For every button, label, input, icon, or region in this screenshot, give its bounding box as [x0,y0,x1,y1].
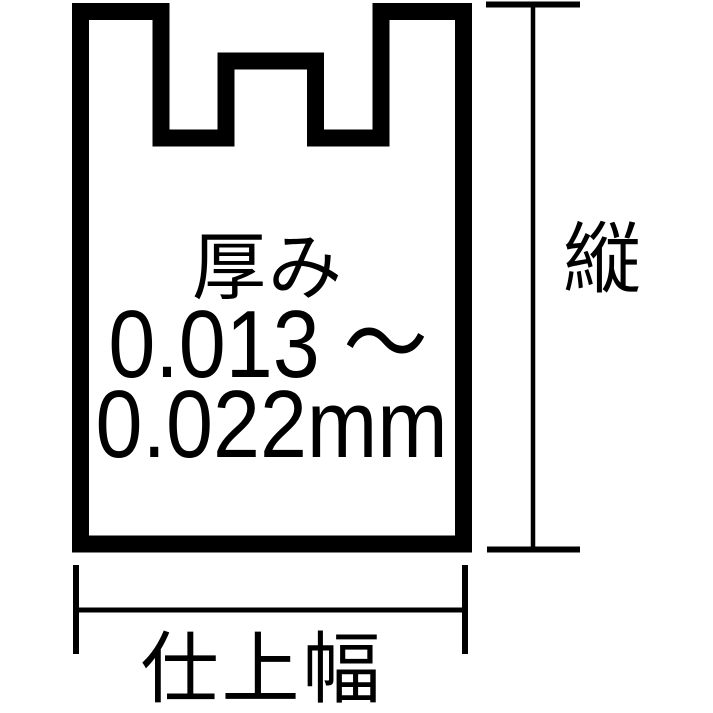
bag-spec-diagram: 厚み 0.013 ～ 0.022mm 縦 仕上幅 [0,0,713,713]
width-dimension-label: 仕上幅 [62,630,462,708]
height-dimension-label: 縦 [556,220,648,298]
thickness-value-to: 0.022mm [96,377,441,473]
